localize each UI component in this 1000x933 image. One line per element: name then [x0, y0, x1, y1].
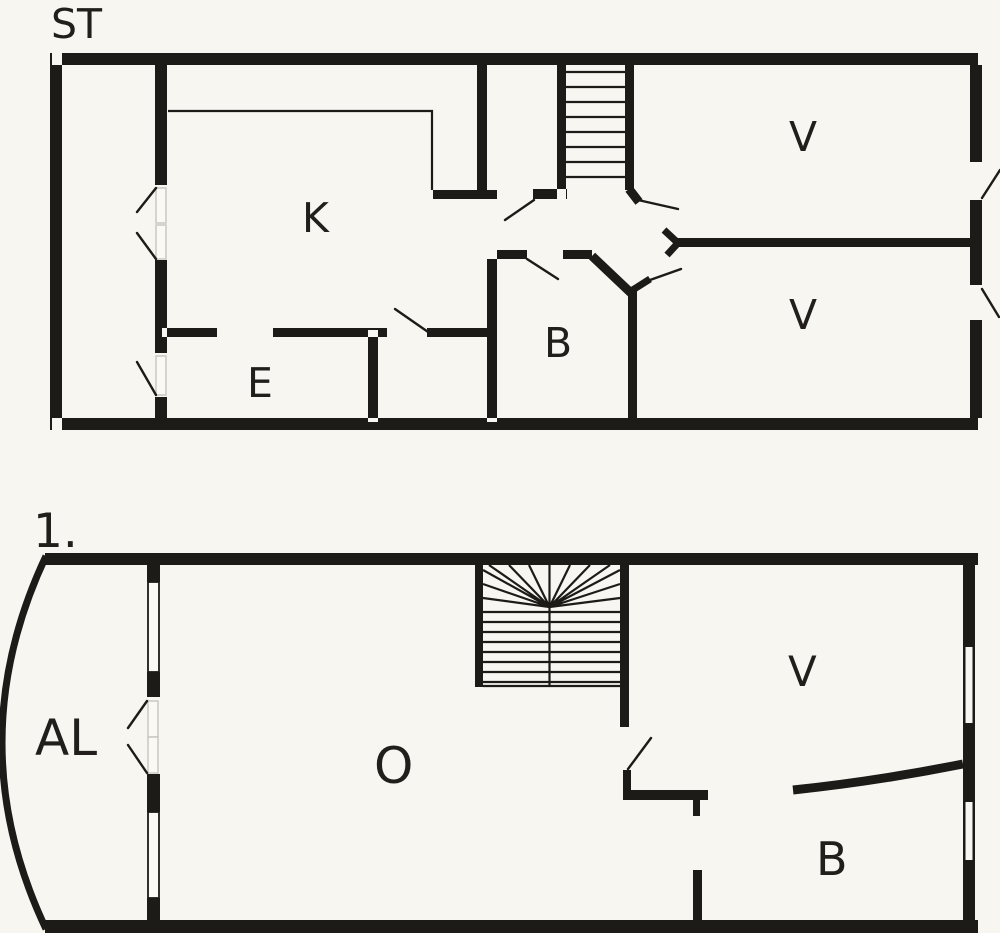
floor-label-first: 1.	[33, 504, 78, 559]
partition-glazing	[148, 582, 159, 672]
room-label-v: V	[788, 647, 817, 696]
floor-label-st: ST	[51, 0, 103, 48]
kitchen-counter-line	[168, 111, 432, 190]
floor-plan-image: ST K E B V V 1. AL O V B	[0, 0, 1000, 933]
door-panel	[156, 188, 166, 223]
first-staircase-treads	[483, 612, 620, 686]
floor-plan-st: ST K E B V V	[50, 0, 1000, 430]
floor-plan-canvas: ST K E B V V 1. AL O V B	[0, 0, 1000, 933]
room-label-al: AL	[35, 709, 97, 767]
floor-plan-first: 1. AL O V B	[2, 504, 978, 933]
door-panel	[156, 225, 166, 259]
door-panel	[148, 701, 158, 737]
curved-interior-wall	[793, 764, 963, 790]
room-label-k: K	[302, 194, 330, 242]
st-angled-walls	[592, 189, 639, 293]
first-staircase-fan	[483, 565, 620, 686]
st-window-swings	[982, 170, 1000, 317]
st-staircase-treads	[566, 72, 625, 177]
room-label-o: O	[374, 737, 413, 795]
st-door-swings	[137, 188, 681, 395]
room-label-v2: V	[789, 291, 817, 339]
door-panel	[148, 737, 158, 773]
st-walls	[50, 53, 982, 430]
room-label-b2: B	[816, 832, 848, 886]
room-label-b: B	[544, 319, 572, 367]
room-label-e: E	[247, 359, 273, 407]
room-label-v1: V	[789, 113, 817, 161]
door-panel	[156, 356, 166, 395]
partition-glazing	[148, 812, 159, 898]
st-wall-caps	[631, 230, 678, 291]
